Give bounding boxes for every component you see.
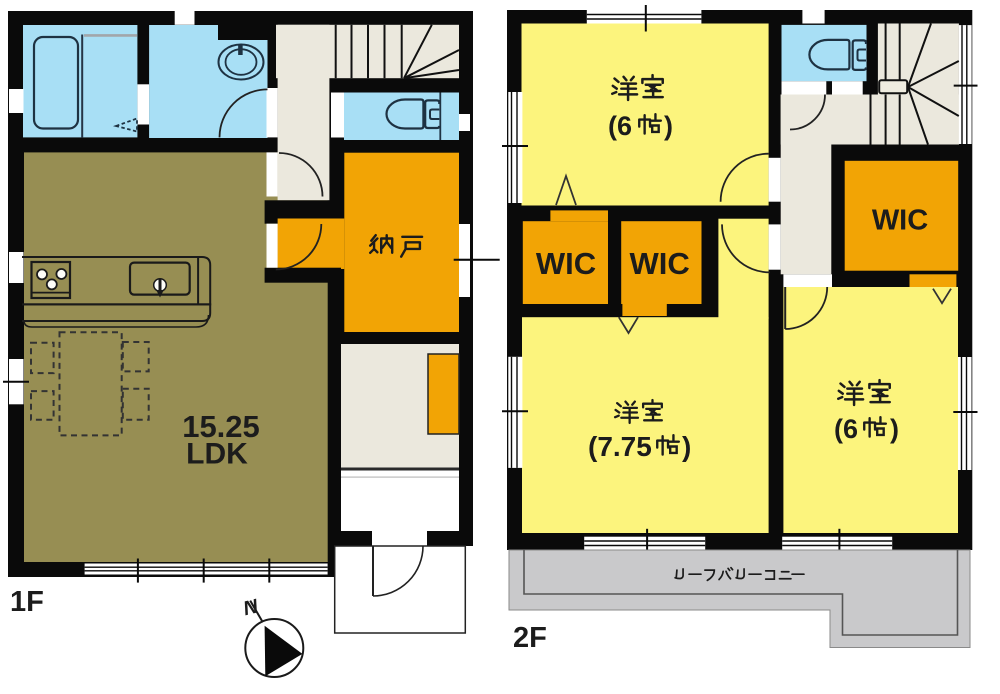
svg-text:): ) — [890, 414, 899, 444]
svg-text:WIC: WIC — [872, 204, 928, 236]
svg-text:(6: (6 — [834, 414, 858, 444]
svg-text:WIC: WIC — [536, 246, 596, 281]
svg-text:(6: (6 — [608, 111, 632, 141]
svg-text:WIC: WIC — [629, 246, 689, 281]
svg-text:): ) — [682, 431, 691, 462]
svg-text:LDK: LDK — [186, 438, 248, 471]
svg-text:1F: 1F — [10, 586, 44, 618]
svg-text:(7.75: (7.75 — [588, 431, 652, 462]
svg-text:): ) — [664, 111, 673, 141]
svg-text:2F: 2F — [513, 622, 547, 654]
